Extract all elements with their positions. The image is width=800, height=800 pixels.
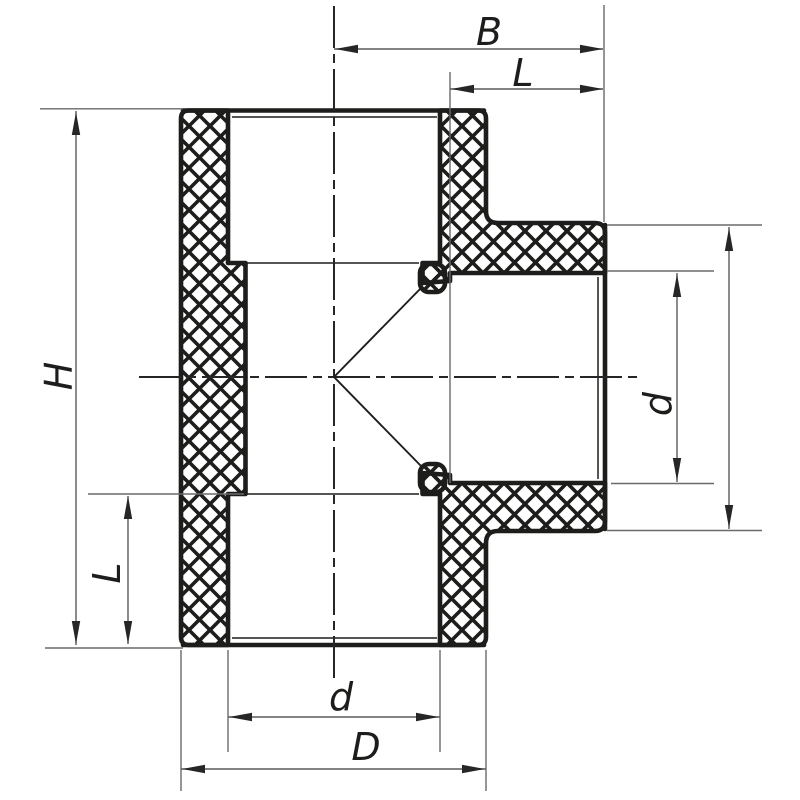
arrowhead-d-right-bottom: [673, 458, 681, 481]
stop-ring-bead-top: [420, 264, 445, 292]
diagonal-upper: [334, 287, 422, 377]
arrowhead-L-left-top: [124, 496, 132, 519]
stop-ring-bead-bottom: [420, 464, 445, 492]
dimension-lines: [72, 45, 733, 773]
label-B: B: [476, 10, 502, 54]
arrowhead-branch-outer-bottom: [725, 505, 733, 528]
lower-right-wall-section: [423, 473, 606, 645]
arrowhead-L-top-left: [451, 85, 474, 93]
arrowhead-d-bottom-left: [229, 713, 252, 721]
label-H: H: [37, 362, 81, 391]
arrowhead-B-right: [580, 45, 603, 53]
arrowhead-B-left: [335, 45, 358, 53]
arrowhead-L-top-right: [580, 85, 603, 93]
diagonal-lower: [334, 377, 422, 467]
arrowhead-H-bottom: [72, 621, 80, 644]
tee-fitting-drawing: B L H L d D d: [0, 0, 800, 800]
arrowhead-H-top: [72, 112, 80, 135]
arrowhead-D-bottom-right: [462, 765, 485, 773]
label-L-top: L: [512, 51, 533, 95]
arrowhead-d-bottom-right: [416, 713, 439, 721]
arrowhead-D-bottom-left: [182, 765, 205, 773]
label-D-bottom: D: [351, 725, 380, 769]
label-d-bottom: d: [329, 675, 354, 719]
drawing-canvas: B L H L d D d: [0, 0, 800, 800]
arrowhead-L-left-bottom: [124, 621, 132, 644]
arrowhead-d-right-top: [673, 274, 681, 297]
dimension-labels: B L H L d D d: [37, 10, 680, 769]
arrowhead-branch-outer-top: [725, 228, 733, 251]
label-d-right: d: [636, 391, 680, 416]
label-L-left: L: [85, 562, 129, 583]
